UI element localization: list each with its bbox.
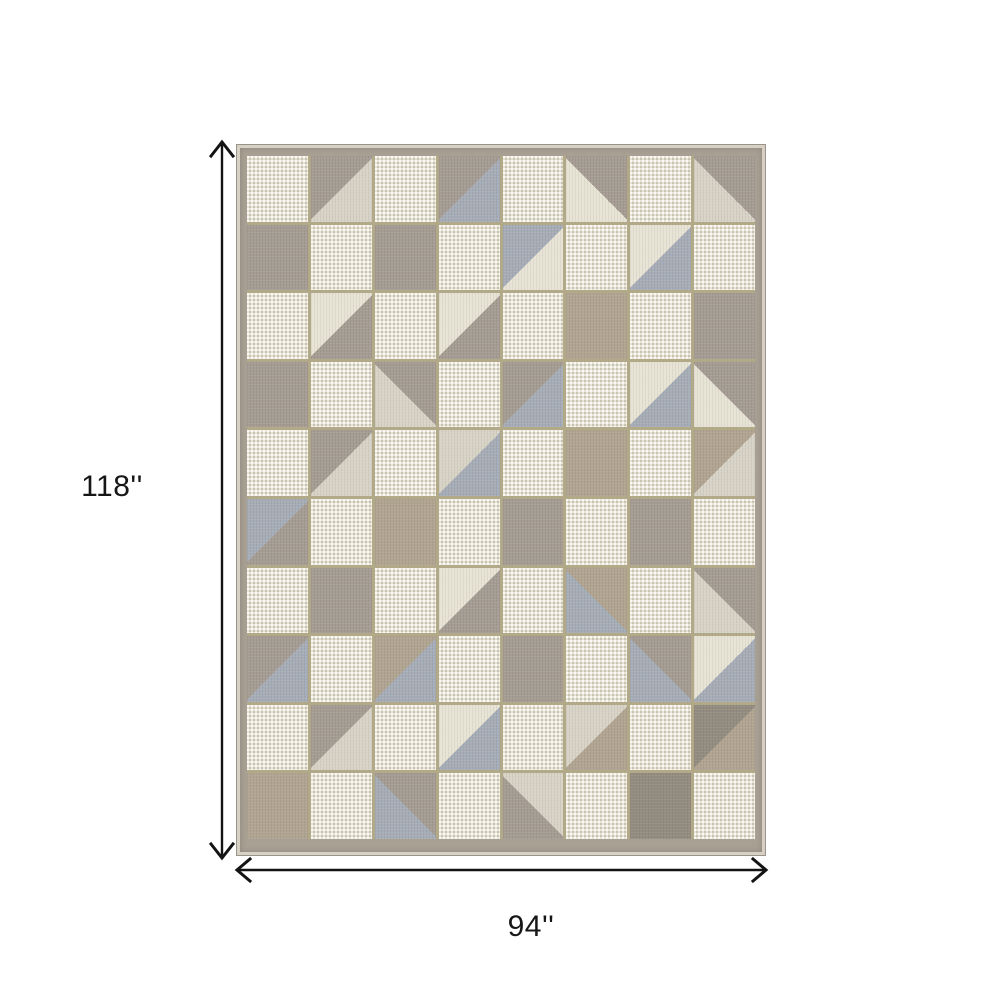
product-dimension-diagram: 118'' 94'' (0, 0, 1000, 1000)
height-dimension-label: 118'' (64, 470, 160, 504)
width-dimension-label: 94'' (483, 910, 579, 944)
